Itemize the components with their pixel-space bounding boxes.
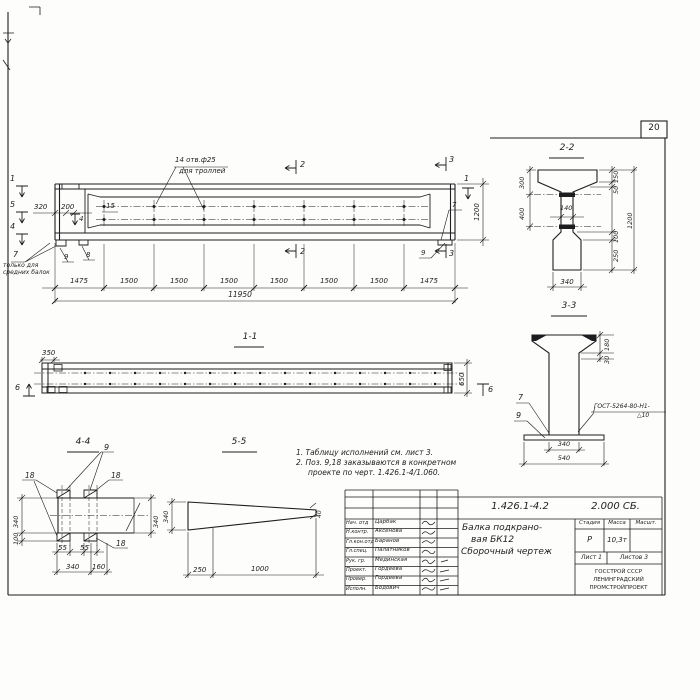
section11-holes bbox=[84, 372, 436, 385]
section33-title: 3-3 bbox=[552, 302, 586, 311]
dim11-650: 650 bbox=[459, 373, 466, 386]
section44-leaders bbox=[22, 452, 128, 548]
dim22-140: 140 bbox=[560, 205, 572, 212]
drawing-sheet: 20 1 5 4 320 200 15 4 14 отв.ф25 для тро… bbox=[0, 0, 700, 700]
cut-mark-1-label: 1 bbox=[10, 175, 15, 183]
dim22-400: 400 bbox=[519, 208, 526, 220]
dim-chain-3: 1500 bbox=[159, 278, 199, 285]
dim22-1200: 1200 bbox=[627, 212, 634, 229]
weld-note-line2: △10 bbox=[637, 413, 649, 419]
cut-mark-3-bottom-label: 3 bbox=[449, 250, 454, 258]
section22-title: 2-2 bbox=[551, 144, 583, 153]
section55-title: 5-5 bbox=[222, 438, 256, 447]
sig-role-0: Нач. отд bbox=[346, 521, 368, 526]
cut-mark-1-right-label: 1 bbox=[464, 175, 469, 183]
dim44-340-bottom: 340 bbox=[66, 564, 79, 571]
org-line1: ГОССТРОЙ СССР bbox=[577, 570, 660, 576]
note-line1: 1. Таблицу исполнений см. лист 3. bbox=[296, 449, 433, 457]
dim22-300: 300 bbox=[519, 177, 526, 189]
dim22-100: 100 bbox=[613, 231, 620, 243]
cut-mark-4-label: 4 bbox=[10, 223, 15, 231]
org-line2: ЛЕНИНГРАДСКИЙ bbox=[577, 578, 660, 584]
cut-mark-6-left-label: 6 bbox=[15, 384, 20, 392]
stage-value: Р bbox=[575, 536, 604, 544]
sig-name-5: Гордеева bbox=[375, 567, 402, 573]
dim-total-11950: 11950 bbox=[215, 291, 265, 299]
doc-code: 2.000 СБ. bbox=[578, 502, 653, 512]
dim22-50: 50 bbox=[613, 186, 620, 194]
section33-outline bbox=[532, 335, 596, 435]
sig-role-1: Н.контр. bbox=[346, 530, 368, 535]
sheet-number-label: Лист 1 bbox=[576, 555, 607, 561]
section22-dims bbox=[526, 166, 637, 291]
callout-9-left: 9 bbox=[64, 254, 68, 261]
col-scale-header: Масшт. bbox=[630, 521, 662, 527]
dim-chain-2: 1500 bbox=[109, 278, 149, 285]
sig-name-6: Гордеева bbox=[375, 576, 402, 582]
note-line3: проекте по черт. 1.426.1-4/1.060. bbox=[308, 469, 440, 477]
hole-column-axes bbox=[104, 200, 404, 226]
section11-title: 1-1 bbox=[236, 333, 264, 342]
callout44-9: 9 bbox=[104, 444, 109, 452]
sig-role-5: Проект. bbox=[346, 568, 367, 573]
section-3-3-view bbox=[514, 316, 666, 467]
drawing-title-line1: Балка подкрано- bbox=[462, 524, 542, 533]
dim44-340-left: 340 bbox=[13, 516, 20, 528]
section11-axes bbox=[34, 373, 464, 384]
dim33-540: 540 bbox=[550, 455, 578, 462]
callout-9-right: 9 bbox=[421, 250, 425, 257]
dim55-340: 340 bbox=[163, 511, 170, 523]
drawing-title-line3: Сборочный чертеж bbox=[461, 548, 552, 557]
cut-mark-2-bottom-label: 2 bbox=[300, 248, 305, 256]
sig-name-1: Аксенова bbox=[375, 529, 402, 535]
dim55-40: 40 bbox=[317, 510, 323, 518]
sig-role-6: Провер. bbox=[346, 577, 367, 582]
dim-chain-5: 1500 bbox=[259, 278, 299, 285]
sig-role-3: Гл.спец. bbox=[346, 549, 368, 554]
dim44-340-right: 340 bbox=[153, 516, 160, 528]
section-4-4-view bbox=[17, 452, 156, 575]
dim22-340: 340 bbox=[556, 279, 578, 286]
weld-note-line1: ГОСТ-5264-80-Н1- bbox=[594, 404, 650, 410]
dim-chain-8: 1475 bbox=[409, 278, 449, 285]
callout-15: 15 bbox=[106, 203, 115, 210]
cut-mark-6-right-label: 6 bbox=[488, 386, 493, 394]
middle-beam-note-line2: средних балок bbox=[3, 270, 50, 276]
dim-chain-4: 1500 bbox=[209, 278, 249, 285]
dim-200: 200 bbox=[61, 204, 74, 211]
dim33-30: 30 bbox=[604, 356, 611, 364]
cut-mark-5-label: 5 bbox=[10, 201, 15, 209]
callout-7-left: 7 bbox=[13, 251, 18, 259]
hole-axes bbox=[96, 207, 430, 220]
callout44-18-right: 18 bbox=[111, 472, 121, 480]
section-2-2-view bbox=[526, 158, 637, 291]
org-line3: ПРОМСТРОЙПРОЕКТ bbox=[577, 586, 660, 592]
sig-name-2: Баранов bbox=[375, 539, 399, 545]
dim22-250: 250 bbox=[613, 250, 620, 262]
dim44-100: 100 bbox=[13, 533, 20, 545]
callout44-18-left: 18 bbox=[25, 472, 35, 480]
flange-corner-hatch bbox=[532, 335, 596, 341]
sig-role-4: Рук. гр. bbox=[346, 559, 366, 564]
dim44-55a: 55 bbox=[58, 545, 67, 552]
dim-chain-7: 1500 bbox=[359, 278, 399, 285]
doc-number: 1.426.1-4.2 bbox=[465, 502, 575, 512]
dim55-1000: 1000 bbox=[251, 566, 269, 573]
dim33-340: 340 bbox=[553, 441, 575, 448]
section11-outline bbox=[42, 363, 452, 393]
sig-name-7: Бодович bbox=[375, 586, 399, 592]
page-number: 20 bbox=[643, 124, 665, 133]
trolley-holes bbox=[103, 205, 406, 221]
col-mass-header: Масса bbox=[604, 521, 630, 527]
callout-7-right: 7 bbox=[452, 202, 456, 209]
dim33-180: 180 bbox=[604, 339, 611, 351]
dim22-150: 150 bbox=[613, 171, 620, 183]
sheets-total-label: Листов 3 bbox=[608, 555, 660, 561]
col-stage-header: Стадия bbox=[575, 521, 604, 527]
dim-320: 320 bbox=[34, 204, 47, 211]
cut-mark-2-top-label: 2 bbox=[300, 161, 305, 169]
section-5-5-view bbox=[167, 452, 324, 578]
callout33-7: 7 bbox=[518, 394, 523, 402]
sig-name-4: Мединская bbox=[375, 558, 407, 564]
drawing-title-line2: вая БК12 bbox=[471, 536, 514, 545]
callout-8: 8 bbox=[86, 252, 90, 259]
dim44-160: 160 bbox=[92, 564, 105, 571]
holes-note-line1: 14 отв.ф25 bbox=[175, 157, 216, 164]
section44-dims bbox=[17, 494, 156, 575]
cut-mark-4-partner-label: 4 bbox=[79, 216, 83, 223]
holes-note-line2: для троллей bbox=[179, 168, 225, 175]
cut-mark-3-top-label: 3 bbox=[449, 156, 454, 164]
section22-outline bbox=[538, 170, 597, 270]
sig-role-2: Гл.кон.отд bbox=[346, 540, 374, 545]
callout44-18-bottom: 18 bbox=[116, 540, 126, 548]
dim-height-1200: 1200 bbox=[474, 203, 481, 221]
drawing-linework bbox=[0, 0, 700, 700]
dim44-55b: 55 bbox=[80, 545, 89, 552]
section55-outline bbox=[188, 502, 316, 530]
dim55-250: 250 bbox=[193, 567, 206, 574]
mass-value: 10,3т bbox=[604, 537, 630, 544]
section55-dims bbox=[167, 498, 324, 578]
dim-chain-1: 1475 bbox=[59, 278, 99, 285]
signature-scribbles bbox=[422, 521, 449, 590]
note-line2: 2. Поз. 9,18 заказываются в конкретном bbox=[296, 459, 456, 467]
section11-cut-marks bbox=[23, 384, 489, 396]
section-1-1-view bbox=[23, 347, 489, 397]
section44-title: 4-4 bbox=[68, 438, 98, 447]
dim11-350: 350 bbox=[42, 350, 55, 357]
beam-inner-lines bbox=[62, 184, 430, 233]
dim-chain-6: 1500 bbox=[309, 278, 349, 285]
sig-name-0: Царбак bbox=[375, 520, 396, 526]
sig-role-7: Исполн. bbox=[346, 587, 367, 592]
callout33-9: 9 bbox=[516, 412, 521, 420]
sig-name-3: Палатников bbox=[375, 548, 410, 554]
